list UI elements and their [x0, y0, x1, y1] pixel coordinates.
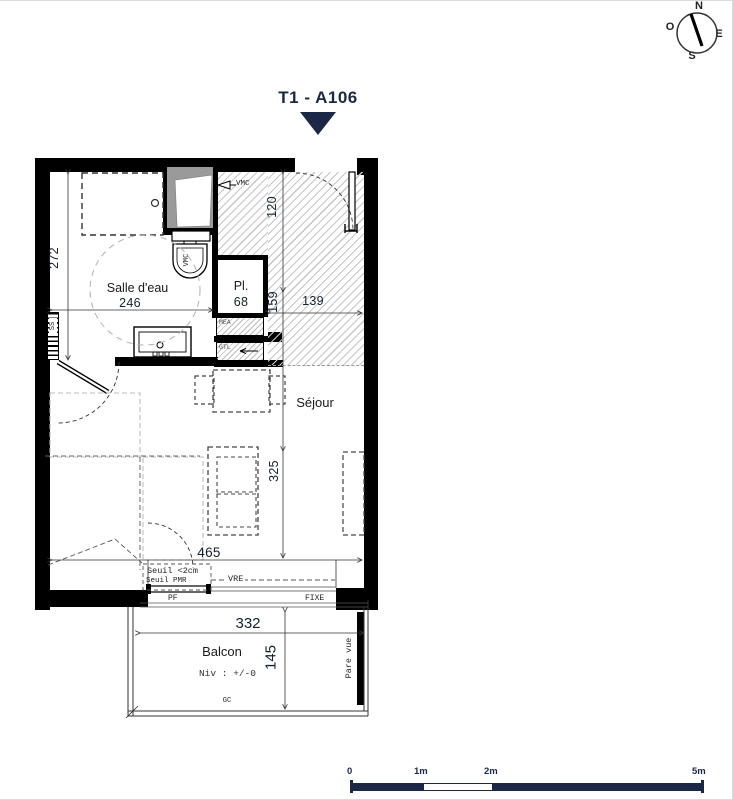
compass-icon — [677, 13, 717, 53]
washbasin-taps — [153, 352, 169, 356]
chair-left-outline — [195, 376, 214, 404]
scale-0-label: 0 — [347, 766, 352, 777]
bathroom-door-leaf — [58, 362, 108, 392]
room-label-sejour: Séjour — [285, 395, 345, 410]
room-label-placard: Pl. — [220, 279, 262, 293]
scale-segment-2 — [423, 783, 493, 791]
pf-window-frame — [148, 586, 209, 592]
wall-bathroom-bottom — [115, 357, 218, 366]
balcony-level-note: Niv : +/-0 — [190, 668, 265, 679]
pf-end-cap-right — [206, 584, 211, 594]
dim-120: 120 — [265, 193, 279, 221]
pare-vue-screen — [357, 612, 364, 705]
washbasin-counter — [134, 327, 191, 357]
entrance-marker-icon — [300, 112, 336, 135]
water-heater-face — [175, 175, 212, 227]
dim-246: 246 — [100, 296, 160, 310]
dim-68: 68 — [220, 295, 262, 309]
scale-segment-3 — [493, 783, 702, 791]
wall-right — [364, 172, 378, 610]
shower-outline — [82, 173, 163, 235]
desk-outline — [343, 452, 364, 535]
floorplan-canvas: T1 - A106 N O E S — [0, 0, 733, 800]
wall-bottom-left — [35, 590, 148, 607]
table-outline — [213, 370, 270, 412]
dim-139: 139 — [295, 294, 331, 308]
pf-label: PF — [168, 594, 178, 603]
wall-heater-bottom — [163, 227, 214, 235]
wall-left — [35, 158, 50, 610]
bed-inner-bottom — [217, 494, 256, 527]
bed-inner-top — [217, 457, 256, 492]
plan-title: T1 - A106 — [258, 88, 378, 108]
compass-west-label: O — [663, 21, 677, 33]
ss-radiator-label: SS — [49, 318, 57, 334]
scale-2m-label: 2m — [484, 766, 498, 777]
wall-shower-heater — [163, 166, 171, 232]
scale-tick-start — [350, 780, 353, 793]
pare-vue-label: Pare vue — [344, 635, 354, 681]
compass-north-label: N — [692, 0, 706, 12]
fixe-label: FIXE — [305, 594, 324, 603]
scale-1m-label: 1m — [414, 766, 428, 777]
bed-outline — [208, 447, 258, 535]
gc-label: GC — [218, 697, 236, 705]
water-heater-body — [167, 167, 213, 228]
bathroom-door-swing-arc — [58, 362, 119, 423]
dim-145: 145 — [263, 643, 280, 673]
dim-332: 332 — [225, 615, 271, 632]
balcony-corner-joint — [126, 706, 138, 718]
sill-lines — [140, 603, 368, 607]
toilet-pipes — [184, 241, 196, 245]
dim-272: 272 — [47, 244, 61, 272]
shower-drain-icon — [152, 200, 159, 207]
vmc-wc-label: VMC — [183, 249, 191, 271]
compass-south-label: S — [685, 50, 699, 62]
scale-segment-1 — [352, 783, 423, 791]
scale-tick-end — [701, 780, 704, 793]
dim-159: 159 — [266, 288, 280, 316]
entry-hatch-zone — [268, 172, 364, 366]
vmc-duct-label: VMC — [236, 180, 250, 188]
gtl-label: GTL — [219, 344, 231, 351]
vre-label: VRE — [226, 574, 245, 584]
washbasin-drain-icon — [157, 342, 163, 348]
wall-bottom-right — [336, 588, 378, 610]
dim-465: 465 — [186, 545, 232, 560]
compass-needle — [691, 14, 702, 46]
seuil-label: Seuil <2cm — [147, 566, 198, 576]
room-label-balcon: Balcon — [192, 644, 252, 659]
dim-325: 325 — [267, 457, 281, 485]
mea-label: MEA — [219, 319, 231, 326]
room-label-salle-deau: Salle d'eau — [95, 281, 180, 295]
washbasin-bowl — [139, 332, 186, 352]
chair-right-outline — [269, 376, 285, 404]
scale-5m-label: 5m — [692, 766, 706, 777]
furniture-alt-1 — [50, 393, 140, 457]
opening-direction-symbol — [48, 539, 142, 565]
compass-east-label: E — [712, 28, 726, 40]
bathroom-door-leaf-inner — [58, 362, 108, 392]
furniture-guides — [45, 456, 200, 570]
seuil-pmr-label: Seuil PMR — [146, 577, 187, 585]
fixed-window-glazing — [211, 587, 336, 591]
